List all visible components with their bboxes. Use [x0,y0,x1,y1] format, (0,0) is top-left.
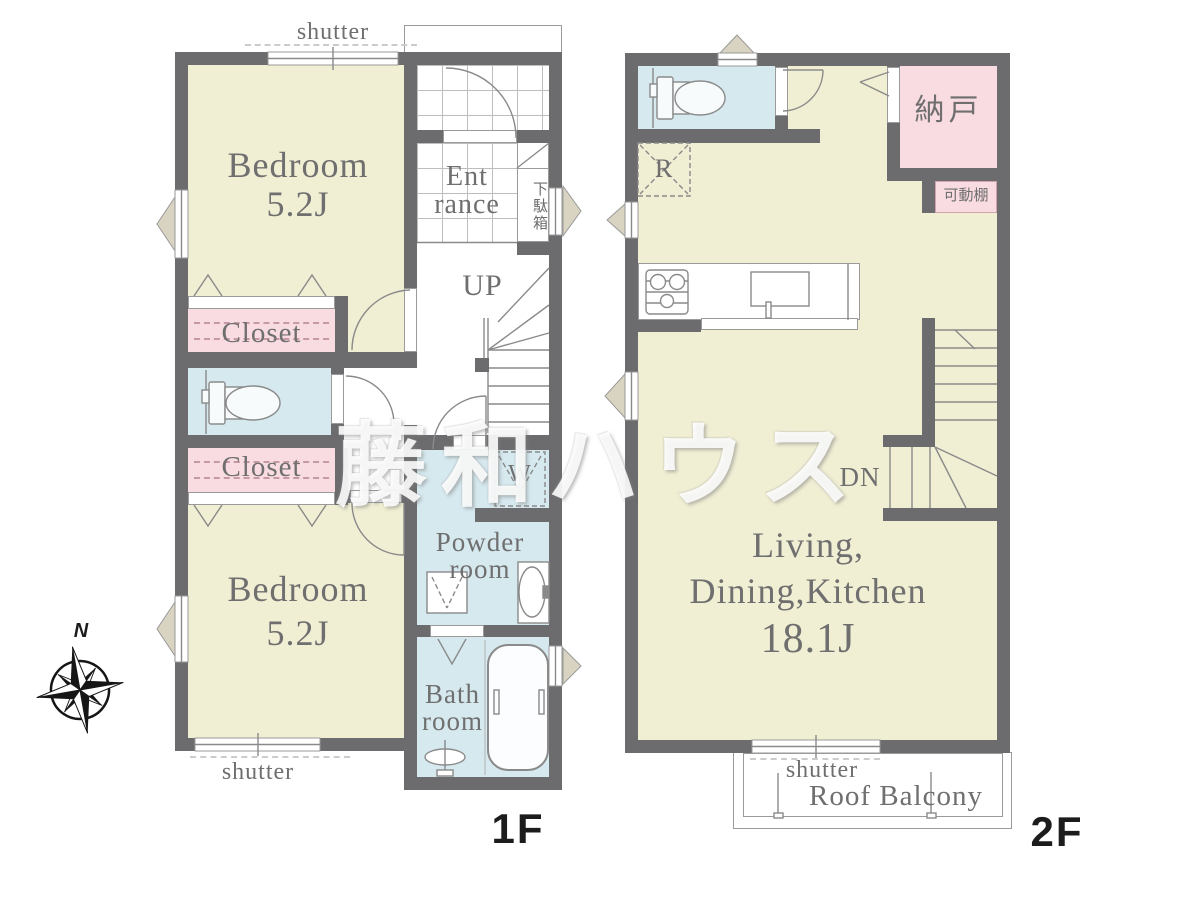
watermark: 藤和ハウス [170,392,1030,525]
f2-balcony-label: Roof Balcony [790,781,1002,811]
f1-entrance-label-2: rance [417,190,517,219]
f2-fridge-label: R [638,155,690,182]
f2-toilet-icon [650,68,725,128]
f1-shutter-top-label: shutter [273,20,393,45]
f1-bath-label-1: Bath [400,680,505,708]
f1-floor-label: 1F [478,805,558,853]
f1-bath-label-2: room [400,707,505,735]
f2-sink-icon [751,263,848,320]
compass-north-label: N [66,620,98,643]
f2-stove-icon [646,270,688,314]
f1-entrance-label-1: Ent [417,162,517,191]
f1-stairs-up-label: UP [455,270,510,301]
f2-ldk-label-1: Living, [688,527,928,564]
f1-powder-label-1: Powder [415,528,545,556]
f1-shutter-bottom-label: shutter [198,760,318,785]
f1-bedroom2-area: 5.2J [188,615,408,652]
f1-powder-label-2: room [415,555,545,583]
f1-shower-drain-icon [425,740,465,776]
f2-shelf-label: 可動棚 [935,189,997,205]
f2-floor-label: 2F [1017,808,1097,856]
f1-bedroom1-name: Bedroom [188,147,408,184]
f1-closet1-label: Closet [188,318,335,348]
f2-ldk-label-2: Dining,Kitchen [648,573,968,610]
floor-plan-canvas: shutter Bedroom 5.2J Ent rance 下駄箱 UP Cl… [0,0,1200,900]
f1-shoe-box-label: 下駄箱 [522,173,546,239]
f2-storage-label: 納戸 [900,95,997,126]
f1-bedroom2-name: Bedroom [188,571,408,608]
f1-shutter-line-bottom [190,756,350,758]
f2-ldk-area: 18.1J [688,618,928,662]
f1-bedroom1-area: 5.2J [188,186,408,223]
